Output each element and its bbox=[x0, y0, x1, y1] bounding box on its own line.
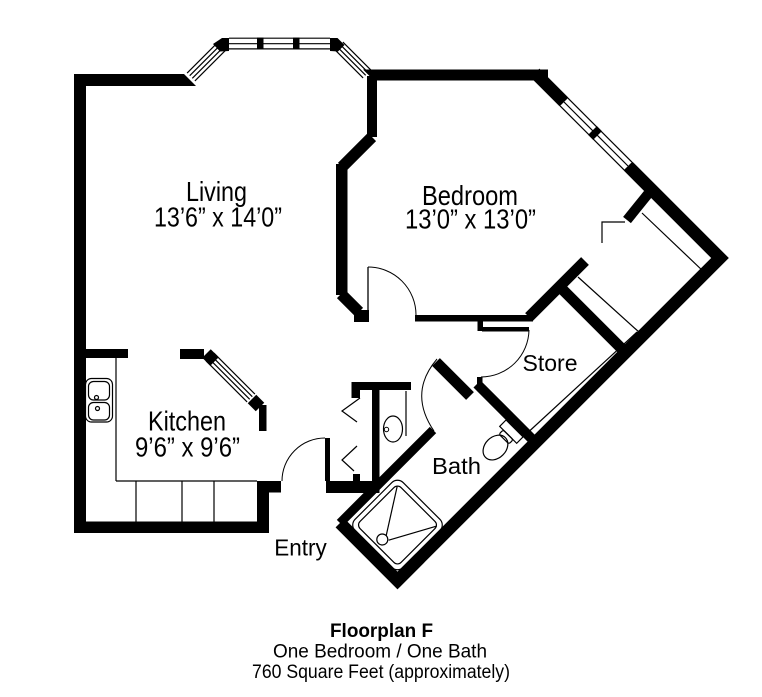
svg-text:Bath: Bath bbox=[432, 453, 481, 479]
svg-text:760 Square Feet (approximately: 760 Square Feet (approximately) bbox=[252, 662, 510, 683]
svg-text:Store: Store bbox=[523, 350, 578, 376]
svg-text:Floorplan F: Floorplan F bbox=[330, 621, 433, 642]
svg-text:9’6” x 9’6”: 9’6” x 9’6” bbox=[135, 432, 240, 463]
svg-text:Entry: Entry bbox=[274, 535, 327, 561]
svg-text:One Bedroom / One Bath: One Bedroom / One Bath bbox=[273, 642, 487, 663]
svg-text:13’6” x 14’0”: 13’6” x 14’0” bbox=[154, 202, 282, 233]
svg-text:13’0” x 13’0”: 13’0” x 13’0” bbox=[405, 204, 536, 235]
